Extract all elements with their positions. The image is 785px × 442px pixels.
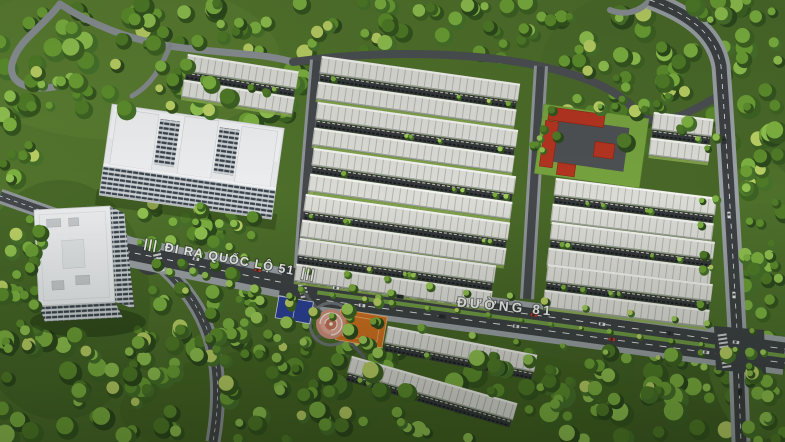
scene-svg: |||ĐI RA QUỐC LỘ 51||| ĐƯỜNG 81 — [0, 0, 785, 442]
aerial-render-canvas: |||ĐI RA QUỐC LỘ 51||| ĐƯỜNG 81 — [0, 0, 785, 442]
vignette-overlay — [0, 0, 785, 442]
